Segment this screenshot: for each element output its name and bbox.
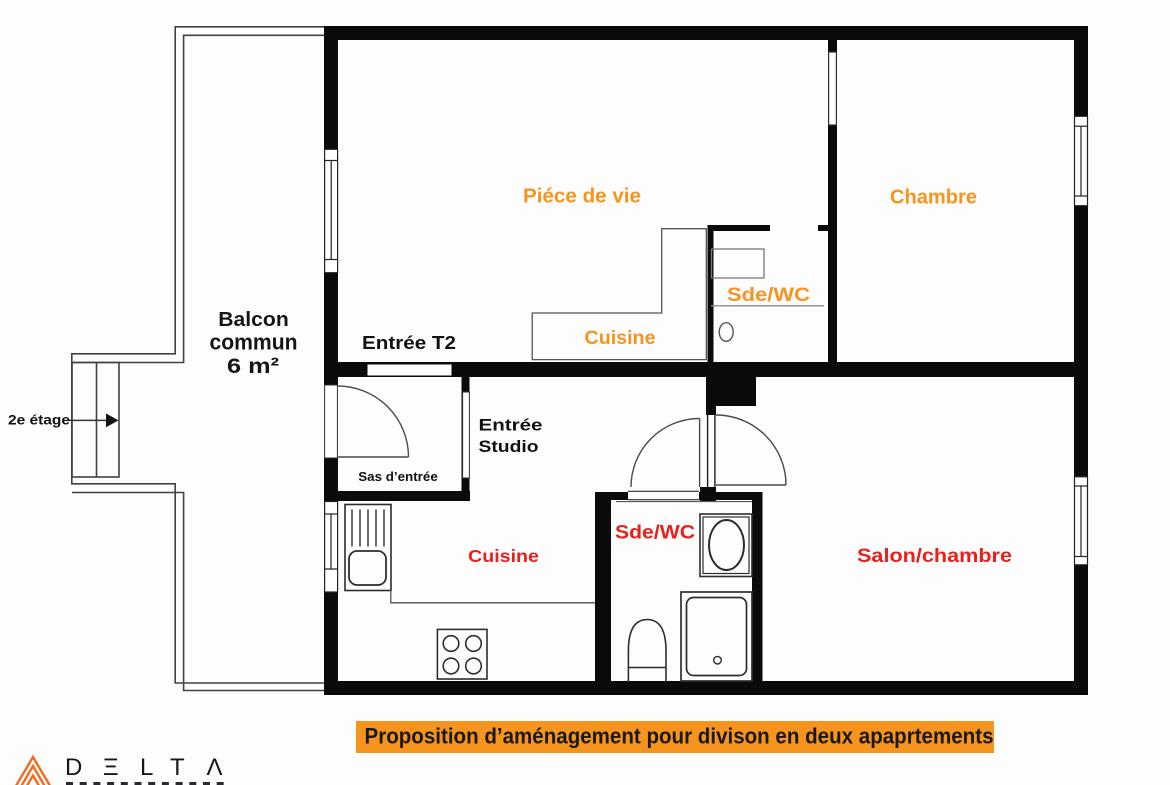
svg-text:Sas d’entrée: Sas d’entrée bbox=[358, 470, 438, 484]
svg-text:2e étage: 2e étage bbox=[8, 412, 70, 428]
svg-text:T: T bbox=[170, 754, 185, 781]
svg-text:Proposition d’aménagement pour: Proposition d’aménagement pour divison e… bbox=[365, 724, 994, 749]
svg-text:6 m²: 6 m² bbox=[227, 354, 279, 378]
svg-text:Salon/chambre: Salon/chambre bbox=[857, 545, 1012, 567]
svg-text:Ξ: Ξ bbox=[103, 754, 119, 781]
svg-text:Cuisine: Cuisine bbox=[468, 546, 539, 566]
svg-text:Entrée T2: Entrée T2 bbox=[362, 333, 456, 353]
svg-text:Entrée: Entrée bbox=[479, 417, 543, 435]
svg-text:L: L bbox=[140, 754, 153, 781]
svg-text:Sde/WC: Sde/WC bbox=[615, 522, 695, 544]
svg-text:Balcon: Balcon bbox=[218, 308, 289, 331]
svg-text:Cuisine: Cuisine bbox=[585, 328, 656, 349]
svg-text:Studio: Studio bbox=[479, 437, 539, 456]
svg-text:Sde/WC: Sde/WC bbox=[727, 285, 810, 306]
svg-text:commun: commun bbox=[210, 330, 298, 355]
svg-text:Chambre: Chambre bbox=[890, 187, 977, 209]
svg-text:D: D bbox=[65, 754, 82, 781]
svg-text:Λ: Λ bbox=[207, 754, 223, 781]
svg-text:Piéce de vie: Piéce de vie bbox=[523, 186, 641, 208]
